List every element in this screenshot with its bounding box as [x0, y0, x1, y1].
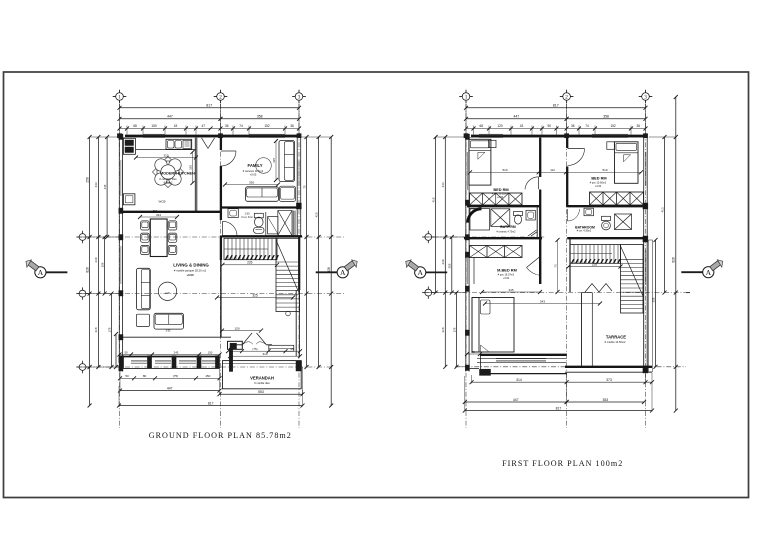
svg-text:358: 358 [257, 115, 263, 119]
svg-text:M.BED RM: M.BED RM [497, 268, 517, 273]
svg-text:# marble parquet 28.20 m2: # marble parquet 28.20 m2 [174, 269, 207, 273]
svg-text:45: 45 [290, 347, 294, 351]
svg-text:415: 415 [431, 197, 435, 202]
svg-text:245: 245 [174, 350, 179, 354]
svg-text:A: A [38, 268, 44, 277]
svg-text:336: 336 [249, 180, 254, 184]
svg-text:3: 3 [644, 95, 647, 101]
svg-text:+3.00: +3.00 [503, 277, 510, 280]
svg-text:320: 320 [163, 153, 168, 157]
svg-text:TARRACE: TARRACE [606, 335, 626, 340]
svg-text:2.92: 2.92 [166, 330, 171, 333]
svg-text:80: 80 [143, 374, 147, 378]
svg-text:4.20: 4.20 [165, 292, 170, 295]
svg-text:FIRST FLOOR PLAN 100m2: FIRST FLOOR PLAN 100m2 [502, 459, 623, 468]
svg-text:(75): (75) [173, 374, 178, 378]
svg-text:112: 112 [550, 168, 555, 172]
svg-text:150: 150 [208, 350, 213, 354]
svg-text:BED RM: BED RM [493, 187, 508, 192]
svg-text:150: 150 [151, 124, 157, 128]
svg-text:415: 415 [103, 184, 107, 189]
svg-text:FAMILY: FAMILY [248, 163, 263, 168]
svg-text:A: A [340, 268, 346, 277]
svg-text:43: 43 [174, 124, 178, 128]
svg-text:2: 2 [565, 95, 568, 101]
svg-text:325: 325 [188, 165, 192, 170]
svg-text:226: 226 [592, 262, 598, 266]
svg-text:152: 152 [264, 124, 270, 128]
svg-text:447: 447 [513, 115, 519, 119]
svg-text:50: 50 [125, 374, 129, 378]
svg-text:# cer. 3m2: # cer. 3m2 [241, 216, 253, 219]
svg-text:345: 345 [508, 288, 513, 292]
svg-text:1.90: 1.90 [244, 212, 250, 216]
svg-text:828: 828 [672, 257, 676, 263]
svg-text:36: 36 [225, 124, 229, 128]
svg-text:152: 152 [610, 124, 616, 128]
svg-text:353: 353 [602, 398, 608, 402]
svg-text:415: 415 [272, 158, 276, 163]
svg-text:334: 334 [156, 213, 161, 217]
svg-text:413: 413 [660, 207, 664, 212]
svg-text:BATH RM: BATH RM [500, 225, 516, 229]
svg-text:50: 50 [124, 350, 128, 354]
svg-text:258: 258 [448, 263, 452, 268]
svg-text:358: 358 [603, 115, 609, 119]
svg-text:510: 510 [502, 168, 507, 172]
svg-text:47: 47 [201, 124, 205, 128]
svg-text:# ceramic 11.5m2: # ceramic 11.5m2 [243, 169, 264, 173]
svg-text:# ceramic tiles: # ceramic tiles [159, 177, 177, 181]
svg-text:LIVING & DINING: LIVING & DINING [173, 263, 209, 268]
svg-text:85: 85 [471, 350, 475, 354]
svg-text:447: 447 [513, 398, 519, 402]
svg-text:226: 226 [247, 261, 253, 265]
svg-text:178: 178 [107, 327, 111, 332]
svg-text:258: 258 [85, 177, 89, 183]
svg-text:415: 415 [314, 212, 318, 217]
svg-text:150: 150 [205, 374, 210, 378]
svg-text:2: 2 [219, 95, 222, 101]
svg-text:543: 543 [540, 299, 545, 303]
svg-text:# marble tiles: # marble tiles [254, 381, 270, 385]
svg-text:150: 150 [234, 326, 239, 330]
svg-text:1: 1 [465, 95, 468, 101]
svg-text:554: 554 [153, 209, 158, 213]
svg-text:817: 817 [206, 104, 212, 108]
svg-text:510: 510 [602, 168, 607, 172]
svg-text:373: 373 [606, 378, 612, 382]
svg-text:9.65m2: 9.65m2 [164, 181, 173, 185]
svg-text:# ceramic 4.70m2: # ceramic 4.70m2 [496, 230, 516, 233]
svg-text:178: 178 [452, 327, 456, 332]
svg-text:443: 443 [441, 182, 445, 187]
svg-text:73: 73 [553, 264, 557, 268]
svg-text:3: 3 [298, 95, 301, 101]
svg-text:230: 230 [94, 257, 98, 262]
svg-text:817: 817 [208, 401, 214, 405]
svg-text:68: 68 [133, 124, 137, 128]
svg-text:318: 318 [441, 327, 445, 332]
svg-text:553: 553 [258, 390, 264, 394]
svg-text:74: 74 [585, 124, 589, 128]
svg-text:447: 447 [167, 386, 173, 390]
svg-text:A: A [417, 268, 423, 277]
svg-text:447: 447 [167, 115, 173, 119]
svg-text:828: 828 [85, 267, 89, 273]
svg-text:68: 68 [479, 124, 483, 128]
svg-text:43: 43 [520, 124, 524, 128]
svg-text:120: 120 [497, 124, 503, 128]
svg-text:36: 36 [636, 124, 640, 128]
svg-text:318: 318 [94, 327, 98, 332]
svg-text:36: 36 [290, 124, 294, 128]
svg-text:WCB: WCB [159, 200, 166, 204]
svg-text:36: 36 [571, 124, 575, 128]
svg-text:258: 258 [100, 262, 104, 267]
svg-text:230: 230 [441, 259, 445, 264]
svg-text:314: 314 [516, 378, 522, 382]
svg-text:+3.00: +3.00 [595, 185, 602, 188]
svg-text:75: 75 [302, 185, 306, 189]
svg-text:+0.00: +0.00 [186, 273, 194, 277]
svg-text:+0.05: +0.05 [250, 172, 257, 176]
svg-text:A: A [706, 268, 712, 277]
svg-text:VERANDAH: VERANDAH [250, 376, 274, 381]
svg-text:443: 443 [94, 182, 98, 187]
svg-text:GROUND FLOOR PLAN 85.78m2: GROUND FLOOR PLAN 85.78m2 [149, 431, 292, 440]
svg-text:(75): (75) [252, 347, 257, 351]
svg-text:74: 74 [239, 124, 243, 128]
svg-text:# marble 13.50m2: # marble 13.50m2 [605, 340, 626, 344]
svg-text:BED RM: BED RM [591, 176, 606, 181]
svg-text:1: 1 [118, 95, 121, 101]
svg-text:817: 817 [553, 104, 559, 108]
svg-text:328: 328 [651, 297, 655, 302]
svg-text:# cer. 4.35m2: # cer. 4.35m2 [577, 230, 592, 233]
svg-text:90: 90 [547, 124, 551, 128]
svg-text:325: 325 [252, 293, 258, 297]
svg-text:817: 817 [556, 406, 562, 410]
svg-text:MODERN KITCHEN: MODERN KITCHEN [160, 172, 195, 176]
